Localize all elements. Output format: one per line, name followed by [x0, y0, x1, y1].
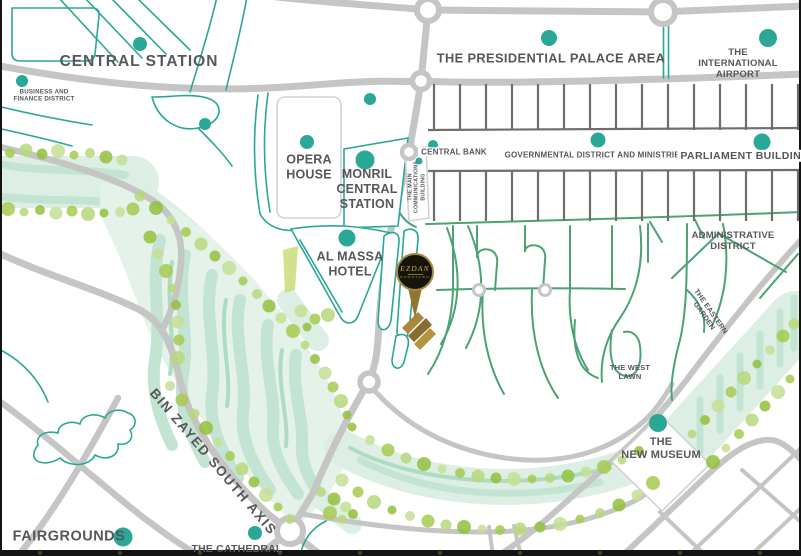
interchange-dot: [199, 118, 211, 130]
presidential-palace-dot: [541, 30, 557, 46]
tree-dot: [706, 455, 720, 469]
label-monril-central-station: MONRIL CENTRAL STATION: [336, 167, 397, 211]
tree-dot: [365, 435, 375, 445]
tree-dot: [553, 517, 567, 531]
tree-dot: [35, 205, 45, 215]
tree-dot: [144, 231, 157, 244]
tree-dot: [722, 444, 731, 453]
tree-dot: [581, 467, 592, 478]
business-finance-dot: [16, 75, 28, 87]
tree-dot: [777, 330, 790, 343]
tree-dot: [127, 203, 140, 216]
tree-dot: [239, 277, 248, 286]
tree-dot: [85, 148, 95, 158]
tree-dot: [726, 387, 737, 398]
label-central-station: CENTRAL STATION: [60, 53, 219, 71]
label-al-massa-hotel: AL MASSA HOTEL: [317, 249, 384, 279]
tree-dot: [737, 371, 751, 385]
label-parliament-building: PARLIAMENT BUILDING: [677, 150, 801, 162]
tree-dot: [528, 475, 537, 484]
tree-dot: [746, 414, 759, 427]
pin-circle: EZDAN DOWNTOWN: [396, 253, 434, 291]
tree-dot: [301, 341, 310, 350]
label-opera-house: OPERA HOUSE: [286, 152, 331, 182]
tree-dot: [319, 367, 332, 380]
tree-dot: [100, 151, 113, 164]
tree-dot: [153, 249, 164, 260]
tree-dot: [700, 415, 710, 425]
tree-dot: [441, 520, 452, 531]
tree-dot: [285, 514, 295, 524]
tree-dot: [316, 487, 326, 497]
pin-stem: [408, 288, 422, 318]
tree-dot: [176, 394, 189, 407]
tree-dot: [222, 261, 236, 275]
tree-dot: [263, 300, 276, 313]
tree-dot: [252, 289, 262, 299]
parliament-dot: [754, 134, 771, 151]
tree-dot: [149, 201, 163, 215]
tree-dot: [353, 487, 364, 498]
tree-dot: [545, 473, 555, 483]
tree-dot: [576, 515, 585, 524]
tree-dot: [225, 451, 235, 461]
tree-dot: [632, 490, 643, 501]
tree-dot: [438, 465, 447, 474]
label-main-communications-building: THE MAIN COMMUNICATIONS BUILDING: [408, 161, 427, 213]
tree-dot: [274, 503, 283, 512]
tree-dot: [310, 354, 320, 364]
label-administrative-district: ADMINISTRATIVE DISTRICT: [692, 230, 775, 252]
brand-sub-text: DOWNTOWN: [400, 276, 430, 279]
tree-dot: [507, 472, 521, 486]
tree-dot: [562, 470, 575, 483]
tree-dot: [51, 144, 65, 158]
tree-dot: [135, 191, 146, 202]
tree-dot: [367, 495, 381, 509]
tree-dot: [303, 323, 312, 332]
label-west-lawn: THE WEST LAWN: [610, 364, 650, 382]
tree-dot: [174, 335, 185, 346]
tree-dot: [310, 314, 321, 325]
tree-dot: [343, 411, 352, 420]
new-museum-dot: [649, 414, 667, 432]
tree-dot: [167, 216, 176, 225]
tree-dot: [597, 460, 611, 474]
tree-dot: [70, 151, 79, 160]
tree-dot: [236, 463, 249, 476]
label-new-museum: THE NEW MUSEUM: [621, 436, 701, 462]
tree-dot: [753, 360, 762, 369]
tree-dot: [328, 382, 339, 393]
tree-dot: [734, 429, 744, 439]
tree-dot: [195, 238, 208, 251]
label-fairgrounds: FAIRGROUNDS: [13, 528, 126, 545]
tree-dot: [422, 515, 435, 528]
tree-dot: [171, 300, 181, 310]
tree-dot: [159, 264, 173, 278]
tree-dot: [20, 144, 33, 157]
tree-dot: [336, 474, 349, 487]
tree-dot: [37, 149, 48, 160]
tree-dot: [1, 202, 15, 216]
label-central-bank: CENTRAL BANK: [418, 147, 490, 156]
brand-logo-text: EZDAN: [400, 265, 430, 273]
label-international-airport: THE INTERNATIONAL AIRPORT: [698, 47, 777, 81]
tree-dot: [165, 381, 175, 391]
tree-dot: [50, 207, 63, 220]
tree-dot: [67, 206, 78, 217]
tree-dot: [334, 394, 348, 408]
tree-dot: [172, 316, 185, 329]
tree-dot: [478, 525, 487, 534]
tree-dot: [535, 522, 546, 533]
tree-dot: [388, 506, 397, 515]
tree-dot: [760, 401, 771, 412]
tree-dot: [771, 385, 785, 399]
airport-dot: [759, 29, 777, 47]
tree-dot: [100, 209, 109, 218]
label-cathedral: THE CATHEDRAL: [191, 543, 282, 555]
tree-dot: [20, 208, 29, 217]
tree-dot: [786, 375, 795, 384]
opera-house-dot: [300, 135, 314, 149]
tree-dot: [348, 423, 357, 432]
tree-dot: [259, 488, 273, 502]
tree-dot: [214, 438, 223, 447]
tree-dot: [210, 251, 221, 262]
tree-dot: [328, 493, 341, 506]
tree-dot: [514, 523, 527, 536]
tree-dot: [189, 409, 200, 420]
tree-dot: [171, 351, 185, 365]
tree-dot: [491, 473, 502, 484]
tree-dot: [249, 477, 260, 488]
tree-dot: [457, 520, 471, 534]
tree-dot: [295, 305, 308, 318]
tree-dot: [765, 345, 775, 355]
tree-dot: [382, 444, 395, 457]
central-station-dot: [133, 37, 147, 51]
palace-west-dot: [364, 93, 376, 105]
label-business-finance-district: BUSINESS AND FINANCE DISTRICT: [14, 89, 75, 104]
tree-dot: [789, 319, 800, 330]
tree-dot: [181, 227, 191, 237]
tree-dot: [417, 457, 431, 471]
tree-dot: [472, 470, 485, 483]
tree-dot: [323, 506, 337, 520]
label-governmental-district: GOVERNMENTAL DISTRICT AND MINISTRIES: [502, 150, 689, 159]
tree-dot: [595, 508, 605, 518]
tree-dot: [81, 207, 95, 221]
governmental-district-dot: [591, 133, 606, 148]
tree-dot: [199, 421, 213, 435]
tree-dot: [338, 515, 347, 524]
tree-dot: [348, 509, 358, 519]
city-map: CENTRAL STATION BUSINESS AND FINANCE DIS…: [0, 0, 801, 556]
tree-dot: [5, 148, 15, 158]
tree-dot: [455, 468, 465, 478]
tree-dot: [613, 499, 626, 512]
tree-dot: [495, 525, 505, 535]
tree-dot: [168, 284, 177, 293]
tree-dot: [646, 476, 660, 490]
tree-dot: [712, 400, 725, 413]
tree-dot: [286, 324, 300, 338]
al-massa-dot: [339, 230, 356, 247]
tree-dot: [115, 207, 125, 217]
tree-dot: [276, 313, 287, 324]
tree-dot: [117, 155, 128, 166]
tree-dot: [401, 453, 412, 464]
tree-dot: [321, 308, 335, 322]
tree-dot: [405, 511, 415, 521]
label-presidential-palace-area: THE PRESIDENTIAL PALACE AREA: [437, 50, 666, 65]
